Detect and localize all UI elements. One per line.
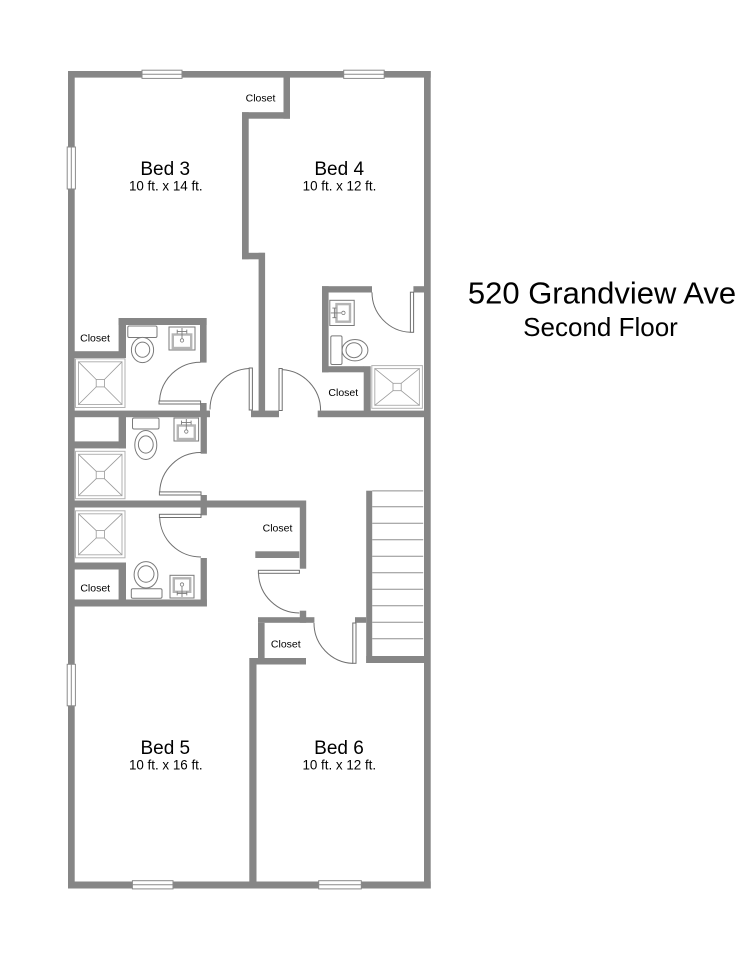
svg-text:Second Floor: Second Floor: [523, 312, 678, 342]
svg-text:Closet: Closet: [80, 583, 110, 595]
svg-text:10 ft. x 14 ft.: 10 ft. x 14 ft.: [129, 179, 203, 194]
svg-text:Closet: Closet: [263, 523, 293, 535]
svg-text:Closet: Closet: [271, 638, 301, 650]
svg-text:Closet: Closet: [328, 387, 358, 399]
svg-text:10 ft. x 12 ft.: 10 ft. x 12 ft.: [302, 758, 376, 773]
svg-text:Bed 3: Bed 3: [140, 159, 190, 180]
svg-text:Bed 4: Bed 4: [314, 159, 364, 180]
svg-text:10 ft. x 16 ft.: 10 ft. x 16 ft.: [129, 758, 203, 773]
svg-text:Closet: Closet: [246, 92, 276, 104]
svg-text:520 Grandview Ave: 520 Grandview Ave: [468, 275, 736, 310]
svg-text:Bed 5: Bed 5: [140, 738, 190, 759]
svg-text:Closet: Closet: [80, 333, 110, 345]
svg-text:Bed 6: Bed 6: [314, 738, 364, 759]
svg-text:10 ft. x 12 ft.: 10 ft. x 12 ft.: [303, 179, 377, 194]
